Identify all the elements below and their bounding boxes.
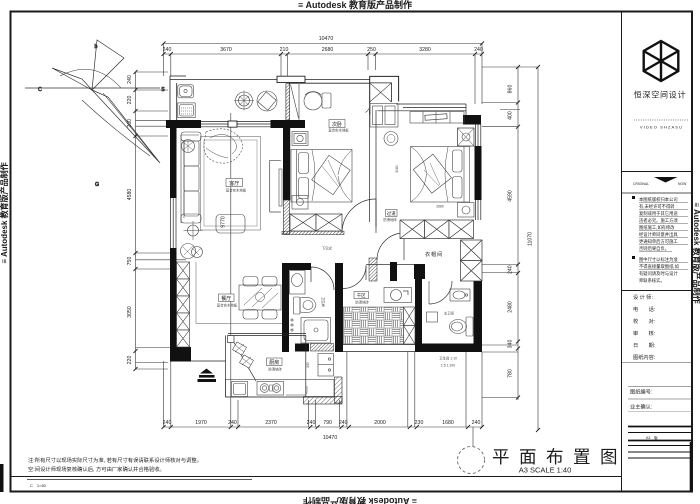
svg-text:230: 230 [415,420,424,426]
svg-text:2000: 2000 [374,420,386,426]
svg-text:复合实木地板: 复合实木地板 [217,303,238,308]
svg-text:日 期:: 日 期: [633,342,655,349]
svg-text:750: 750 [127,257,133,266]
svg-text:图纸编号:: 图纸编号: [630,388,652,396]
svg-text:防滑地砖: 防滑地砖 [355,300,369,305]
svg-text:4590: 4590 [508,190,514,202]
svg-text:不得直接量取图纸,如: 不得直接量取图纸,如 [639,263,679,270]
svg-text:A3 版: A3 版 [646,435,658,440]
svg-text:A3 SCALE 1:40: A3 SCALE 1:40 [519,466,572,475]
svg-text:2680: 2680 [436,205,444,209]
svg-text:G: G [95,182,99,188]
svg-text:240: 240 [127,75,133,84]
svg-text:2480: 2480 [508,301,514,313]
svg-text:3280: 3280 [419,47,431,53]
svg-text:复制或用于其它用途: 复制或用于其它用途 [639,210,678,217]
svg-text:图中尺寸以标注为准: 图中尺寸以标注为准 [639,256,678,263]
svg-text:≡ Autodesk 教育版产品制作: ≡ Autodesk 教育版产品制作 [692,202,700,303]
svg-text:注:所有尺寸以现场实际尺寸为准, 若有尺寸有误请联系设计师核: 注:所有尺寸以现场实际尺寸为准, 若有尺寸有误请联系设计师核对与调整。 [28,456,202,464]
svg-text:复合实木地板: 复合实木地板 [328,128,349,133]
svg-text:3050: 3050 [127,306,133,318]
svg-text:本图纸版权归本公司: 本图纸版权归本公司 [639,196,678,203]
svg-text:否则后果自负。: 否则后果自负。 [639,245,669,252]
svg-text:防滑地砖: 防滑地砖 [383,217,397,222]
svg-text:1:5 1:100: 1:5 1:100 [441,364,455,368]
svg-text:NOW: NOW [678,182,687,186]
svg-text:下沉式: 下沉式 [322,246,333,251]
svg-text:210: 210 [280,47,289,53]
svg-text:b: b [95,44,98,50]
svg-text:240: 240 [163,47,172,53]
svg-text:4580: 4580 [127,189,133,201]
svg-text:卫生间: 卫生间 [321,297,326,308]
svg-text:340: 340 [508,340,514,349]
svg-text:客厅: 客厅 [229,180,239,187]
svg-text:过道: 过道 [387,210,396,217]
svg-text:有疑问请及时与设计: 有疑问请及时与设计 [639,270,678,277]
svg-text:1680: 1680 [442,420,454,426]
svg-text:卫生间 1:10: 卫生间 1:10 [439,356,457,361]
svg-text:780: 780 [508,369,514,378]
svg-text:220: 220 [127,96,133,105]
svg-text:CRIGINAL: CRIGINAL [633,182,649,186]
svg-text:260: 260 [127,119,133,128]
svg-text:复合实木地板: 复合实木地板 [226,188,247,193]
svg-text:220: 220 [127,356,133,365]
svg-text:240: 240 [339,420,348,426]
svg-text:≡ Autodesk 教育版产品制作: ≡ Autodesk 教育版产品制作 [0,162,9,263]
svg-text:240: 240 [508,265,514,274]
svg-text:餐厅: 餐厅 [221,295,231,302]
svg-text:设 计 师:: 设 计 师: [633,293,653,301]
svg-text:10470: 10470 [319,36,334,42]
svg-text:240: 240 [228,420,237,426]
svg-text:240: 240 [307,420,316,426]
svg-text:3670: 3670 [220,47,232,53]
svg-text:240: 240 [474,47,483,53]
svg-text:违者必究。施工方须: 违者必究。施工方须 [639,217,678,224]
svg-text:860: 860 [508,85,514,94]
svg-text:师联系核实。: 师联系核实。 [639,277,665,284]
svg-text:≡ Autodesk 教育版产品制作: ≡ Autodesk 教育版产品制作 [298,0,412,10]
svg-text:图纸施工,如有修改: 图纸施工,如有修改 [639,224,675,231]
svg-text:有,未经许可不得转: 有,未经许可不得转 [639,203,675,210]
svg-text:11070: 11070 [528,232,534,246]
svg-text:更通知单后方可施工: 更通知单后方可施工 [639,238,678,245]
svg-text:3080: 3080 [395,165,399,173]
svg-text:次卧: 次卧 [332,121,342,128]
svg-text:240: 240 [472,420,481,426]
svg-text:图纸内容:: 图纸内容: [633,353,655,361]
svg-text:C 1=50: C 1=50 [30,483,47,488]
svg-text:400: 400 [508,111,514,120]
svg-text:≡ Autodesk 教育版产品制作: ≡ Autodesk 教育版产品制作 [303,496,417,504]
svg-text:VIDEO SHZASU: VIDEO SHZASU [640,125,683,130]
svg-text:审 核:: 审 核: [633,329,655,337]
svg-text:校 对:: 校 对: [633,317,655,325]
svg-text:空:间设计师现场复核确认后, 方可由厂家确认并合格验收。: 空:间设计师现场复核确认后, 方可由厂家确认并合格验收。 [28,465,165,473]
svg-text:电 话:: 电 话: [633,305,655,313]
svg-text:1970: 1970 [195,420,207,426]
svg-text:防滑地砖: 防滑地砖 [268,367,282,372]
svg-text:衣帽间: 衣帽间 [425,250,443,258]
svg-text:2370: 2370 [265,420,277,426]
svg-text:340: 340 [306,362,310,368]
svg-text:790: 790 [323,420,332,426]
svg-text:恒深空间设计: 恒深空间设计 [634,90,687,100]
svg-text:2680: 2680 [322,47,334,53]
svg-text:平面布置图: 平面布置图 [492,447,627,467]
svg-text:经设计师同意并出具: 经设计师同意并出具 [639,231,678,238]
svg-text:厨房: 厨房 [269,359,279,366]
svg-text:主卫间: 主卫间 [444,311,455,316]
svg-text:10470: 10470 [323,435,338,441]
svg-text:250: 250 [367,47,376,53]
svg-text:业主确认:: 业主确认: [630,403,652,411]
svg-text:240: 240 [163,420,172,426]
svg-text:C: C [38,87,42,93]
